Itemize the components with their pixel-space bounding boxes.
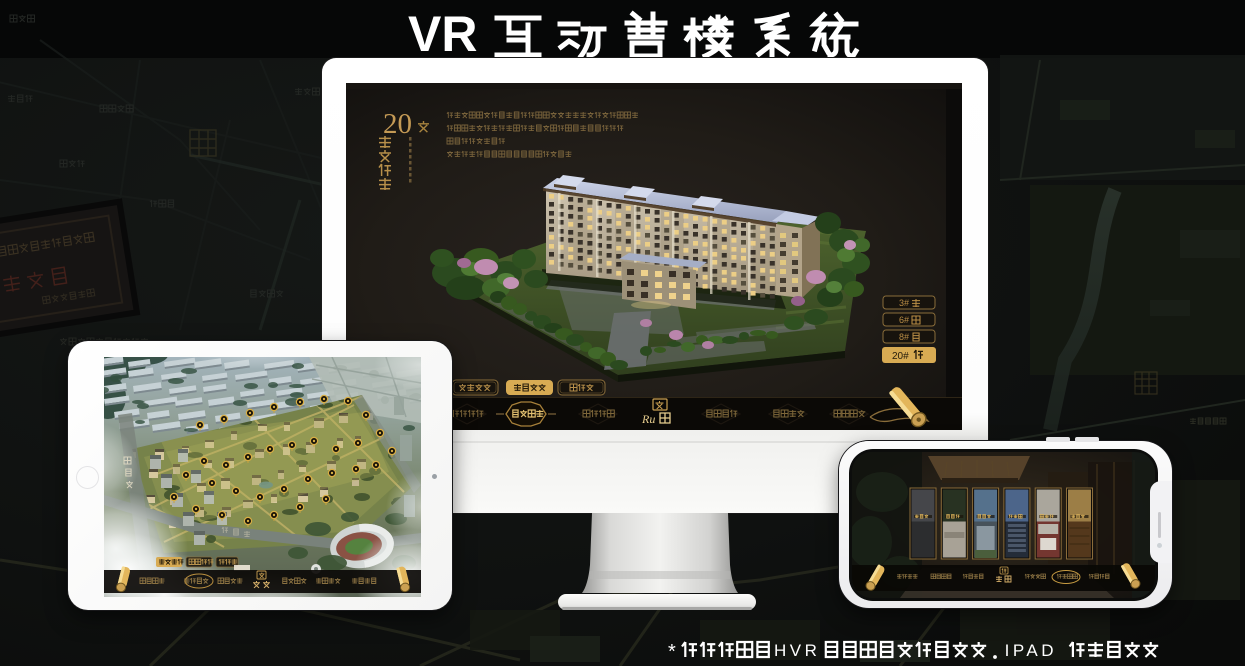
svg-text:20: 20 xyxy=(383,108,412,140)
svg-text:Ru: Ru xyxy=(641,412,655,426)
svg-text:HVR: HVR xyxy=(774,641,820,660)
svg-text:3#: 3# xyxy=(899,298,909,308)
svg-text:20#: 20# xyxy=(892,351,909,362)
svg-text:*: * xyxy=(668,641,676,663)
svg-text:VR: VR xyxy=(408,6,477,60)
svg-text:8#: 8# xyxy=(899,332,909,342)
svg-text:IPAD: IPAD xyxy=(1005,641,1057,660)
svg-text:6#: 6# xyxy=(899,315,909,325)
